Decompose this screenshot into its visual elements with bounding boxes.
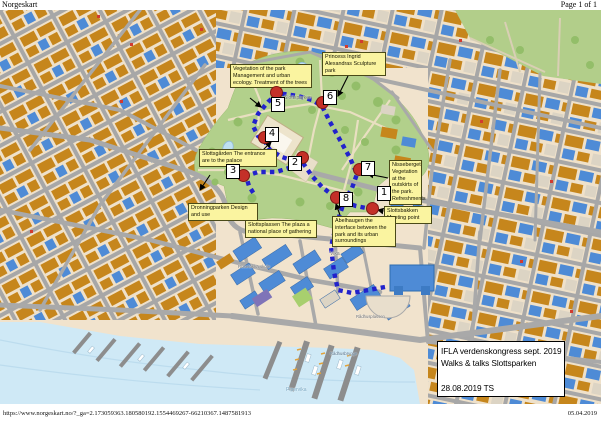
stop-6-number: 6 [323,90,337,105]
legend-line: IFLA verdenskongress sept. 2019 [441,345,561,357]
annotation-nisseberget: Nisseberget Vegetation at the outskirts … [389,160,422,205]
legend-line [441,370,561,382]
stop-1-number: 1 [377,186,391,201]
stop-2-number: 2 [288,156,302,171]
header-app-title: Norgeskart [2,0,37,9]
stop-1-dot [366,202,379,215]
annotation-slottsplassen: Slottsplassen The plaza a national place… [245,220,317,238]
stop-7-number: 7 [361,161,375,176]
legend-box: IFLA verdenskongress sept. 2019Walks & t… [437,341,565,397]
annotation-vegetation-of-the-park: Vegetation of the park Management and ur… [230,64,312,88]
legend-line: Walks & talks Slottsparken [441,357,561,369]
annotation-dronningparken: Dronningparken Design and use [188,203,258,221]
annotation-abelhaugen: Abelhaugen the interface between the par… [332,216,396,247]
stop-5-number: 5 [271,97,285,112]
stop-8-number: 8 [339,192,353,207]
annotation-princess-ingrid: Princess Ingrid Alexandras Sculpture par… [322,52,386,76]
printed-page: Norgeskart Page 1 of 1 [0,0,601,425]
stop-3-number: 3 [226,164,240,179]
footer-date: 05.04.2019 [568,410,597,417]
map-canvas: SlottsparkenUniversitetet i OsloVikaRuse… [0,10,601,404]
legend-line: 28.08.2019 TS [441,382,561,394]
header-page-indicator: Page 1 of 1 [561,0,597,9]
stop-4-number: 4 [265,127,279,142]
footer-url: https://www.norgeskart.no/?_ga=2.1730593… [3,410,251,417]
